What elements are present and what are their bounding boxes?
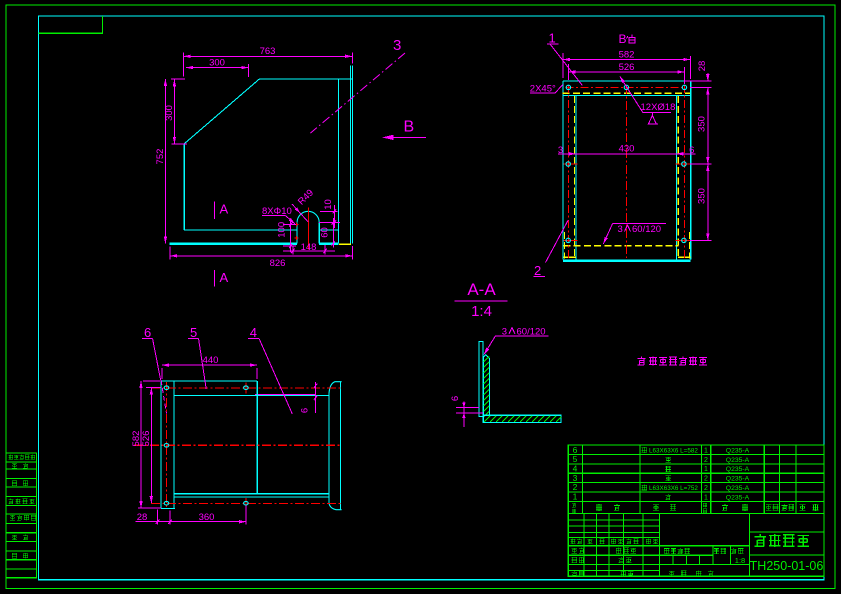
svg-text:350: 350 (697, 188, 708, 204)
svg-text:6: 6 (689, 145, 694, 156)
svg-text:Q235-A: Q235-A (726, 476, 750, 483)
svg-text:A-A: A-A (467, 280, 496, 299)
svg-text:1: 1 (704, 448, 708, 455)
svg-text:28: 28 (137, 512, 148, 523)
svg-text:4: 4 (250, 325, 257, 340)
svg-text:2: 2 (704, 485, 708, 492)
svg-text:3: 3 (618, 224, 623, 235)
svg-text:430: 430 (619, 144, 635, 155)
svg-text:1: 1 (704, 466, 708, 473)
svg-text:Q235-A: Q235-A (726, 494, 750, 501)
svg-text:1:4: 1:4 (471, 303, 492, 320)
svg-text:Q235-A: Q235-A (726, 466, 750, 473)
svg-text:148: 148 (301, 242, 317, 253)
svg-text:60: 60 (319, 227, 330, 238)
svg-text:1: 1 (573, 492, 578, 502)
svg-text:526: 526 (619, 62, 635, 73)
svg-text:60/120: 60/120 (632, 224, 661, 235)
svg-text:440: 440 (203, 355, 219, 366)
svg-text:100: 100 (277, 222, 288, 238)
svg-text:A: A (220, 202, 229, 217)
svg-text:2: 2 (534, 263, 541, 278)
svg-text:12XØ18: 12XØ18 (641, 102, 676, 113)
svg-text:526: 526 (141, 431, 152, 447)
svg-text:752: 752 (155, 149, 166, 165)
svg-text:763: 763 (260, 46, 276, 57)
svg-text:28: 28 (697, 61, 708, 72)
svg-text:TH250-01-06: TH250-01-06 (750, 559, 824, 573)
svg-text:1: 1 (704, 494, 708, 501)
svg-text:6: 6 (300, 408, 311, 413)
svg-text:A: A (220, 270, 229, 285)
svg-text:10: 10 (323, 199, 334, 210)
svg-text:B: B (619, 32, 627, 46)
svg-text:6: 6 (450, 396, 461, 401)
svg-text:Q235-A: Q235-A (726, 457, 750, 464)
svg-text:Q235-A: Q235-A (726, 485, 750, 492)
svg-text:5: 5 (190, 325, 197, 340)
svg-text:3: 3 (393, 37, 401, 54)
svg-text:350: 350 (697, 116, 708, 132)
svg-text:L63X63X6 L=582: L63X63X6 L=582 (649, 448, 698, 455)
svg-text:B: B (404, 119, 415, 136)
svg-text:300: 300 (209, 57, 225, 68)
svg-text:6: 6 (144, 325, 151, 340)
svg-text:1:8: 1:8 (735, 556, 745, 565)
svg-text:360: 360 (199, 512, 215, 523)
svg-text:826: 826 (270, 258, 286, 269)
svg-text:L63X63X6 L=752: L63X63X6 L=752 (649, 485, 698, 492)
svg-text:1: 1 (549, 31, 556, 46)
svg-text:582: 582 (619, 50, 635, 61)
svg-text:2: 2 (704, 457, 708, 464)
svg-text:Q235-A: Q235-A (726, 448, 750, 455)
svg-text:2: 2 (704, 476, 708, 483)
svg-text:3: 3 (558, 145, 563, 156)
